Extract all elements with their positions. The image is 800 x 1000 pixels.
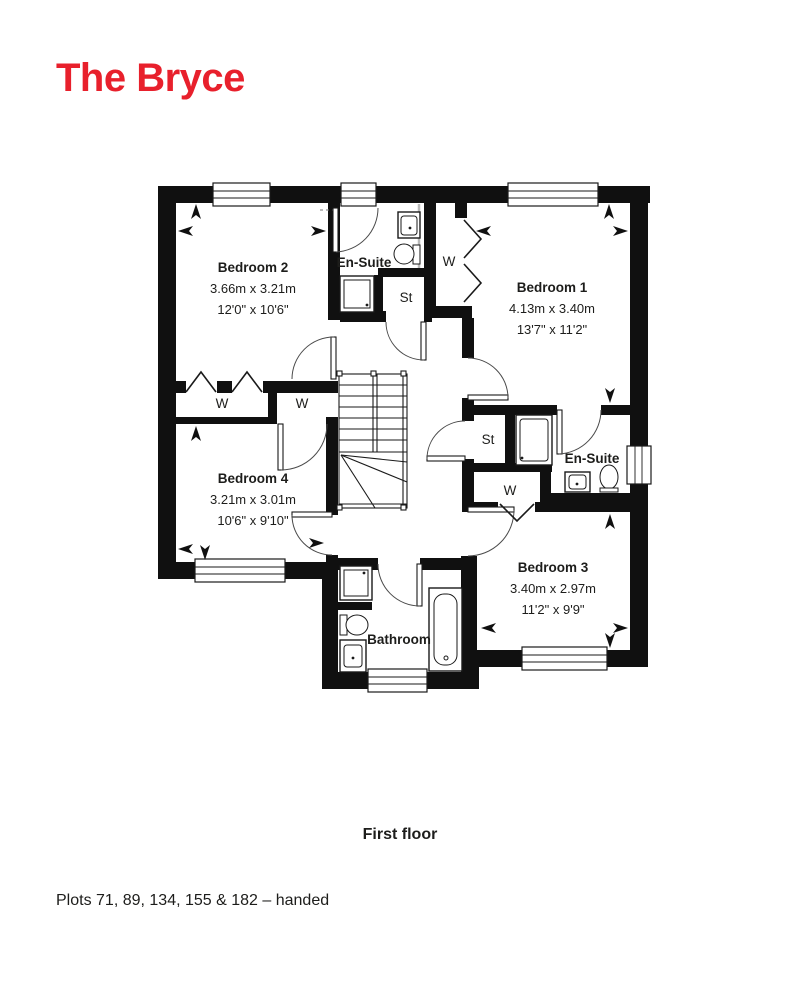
bathroom-name: Bathroom: [367, 632, 431, 647]
window-bedroom2: [213, 183, 270, 206]
bedroom3-metric: 3.40m x 2.97m: [510, 581, 596, 596]
sink-ensuite2: [565, 472, 590, 492]
bedroom4-name: Bedroom 4: [218, 471, 289, 486]
door-bedroom2: [292, 337, 336, 379]
wardrobe-bedroom3-label: W: [504, 483, 517, 498]
window-bedroom4: [195, 559, 285, 582]
ensuite2-name: En-Suite: [565, 451, 620, 466]
door-bathroom: [378, 564, 422, 606]
toilet-ensuite2: [600, 465, 618, 492]
wardrobe-bedroom1-label: W: [443, 254, 456, 269]
door-bedroom1: [468, 358, 508, 400]
window-ensuite2: [627, 446, 651, 484]
wardrobe-left-label: W: [216, 396, 229, 411]
toilet-ensuite1: [394, 244, 420, 264]
toilet-bathroom: [340, 615, 368, 635]
door-store2: [427, 421, 465, 461]
door-bedroom3: [468, 507, 514, 556]
shower-bathroom: [340, 566, 372, 600]
window-bedroom3: [522, 647, 607, 670]
door-ensuite2: [557, 410, 601, 454]
door-store1: [386, 322, 426, 360]
bedroom4-metric: 3.21m x 3.01m: [210, 492, 296, 507]
stairs: [337, 371, 407, 510]
bedroom2-name: Bedroom 2: [218, 260, 289, 275]
bedroom1-name: Bedroom 1: [517, 280, 588, 295]
store1-label: St: [400, 290, 413, 305]
sink-bathroom: [340, 640, 366, 672]
door-bedroom4: [292, 512, 332, 555]
bedroom3-name: Bedroom 3: [518, 560, 589, 575]
bedroom1-imperial: 13'7" x 11'2": [517, 322, 588, 337]
door-wardrobe-bedroom4: [278, 424, 327, 470]
window-bedroom1: [508, 183, 598, 206]
bathtub: [429, 588, 462, 671]
bedroom1-metric: 4.13m x 3.40m: [509, 301, 595, 316]
shower-ensuite2: [516, 415, 552, 465]
window-bathroom: [368, 669, 427, 692]
floorplan-page: The Bryce: [0, 0, 800, 1000]
store2-label: St: [482, 432, 495, 447]
plots-footnote: Plots 71, 89, 134, 155 & 182 – handed: [56, 892, 329, 910]
ensuite1-name: En-Suite: [337, 255, 392, 270]
window-ensuite1: [341, 183, 376, 206]
shower-ensuite1: [340, 276, 374, 312]
bedroom3-imperial: 11'2" x 9'9": [521, 602, 584, 617]
bedroom2-metric: 3.66m x 3.21m: [210, 281, 296, 296]
bedroom2-imperial: 12'0" x 10'6": [217, 302, 289, 317]
floorplan-drawing: Bedroom 2 3.66m x 3.21m 12'0" x 10'6" En…: [0, 0, 800, 1000]
bedroom4-imperial: 10'6" x 9'10": [217, 513, 289, 528]
wardrobe-right-label: W: [296, 396, 309, 411]
sink-ensuite1: [398, 212, 420, 238]
floor-caption: First floor: [0, 826, 800, 844]
